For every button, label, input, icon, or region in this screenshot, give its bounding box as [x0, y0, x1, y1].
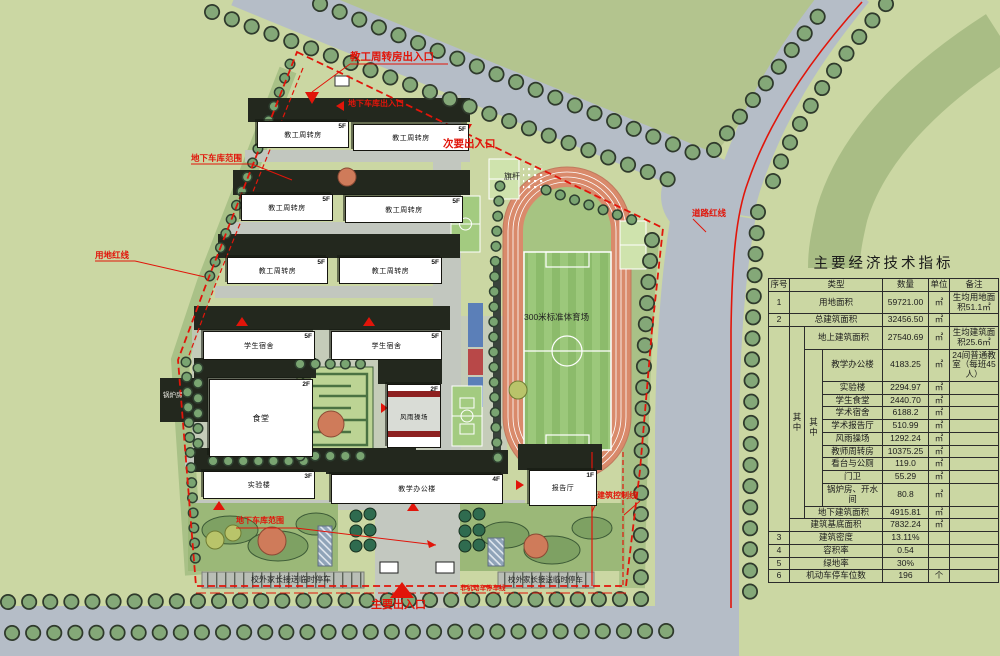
floor-label: 5F	[322, 196, 330, 203]
flagpole-label: 旗杆	[504, 173, 520, 181]
table-row: 3建筑密度13.11%	[769, 532, 999, 545]
floor-label: 5F	[431, 259, 439, 266]
secondary-entrance-label: 次要出入口	[443, 139, 496, 150]
floor-label: 1F	[586, 472, 594, 479]
parking-right-label: 校外家长接送临时停车	[508, 576, 583, 584]
building-dormitory-1: 学生宿舍5F	[203, 331, 315, 360]
building-label: 食堂	[253, 413, 270, 424]
table-row: 建筑基底面积7832.24㎡	[769, 519, 999, 532]
building-label: 学生宿舍	[244, 341, 274, 351]
building-teaching-office: 教学办公楼4F	[331, 474, 503, 504]
building-label: 教工周转房	[372, 266, 410, 276]
col-type: 类型	[790, 279, 883, 292]
floor-label: 5F	[431, 333, 439, 340]
building-canteen: 食堂2F	[209, 379, 313, 457]
building-label: 教工周转房	[268, 203, 306, 213]
building-staff-housing-6: 教工周转房5F	[339, 257, 442, 284]
indicators-table: 序号 类型 数量 单位 备注 1用地面积59721.00㎡生均用地面积51.1㎡…	[768, 278, 999, 583]
main-entrance-label: 主要出入口	[371, 600, 426, 611]
building-label: 学生宿舍	[372, 341, 402, 351]
building-label: 实验楼	[248, 480, 271, 490]
garage-extent-label-top: 地下车库范围	[191, 154, 242, 163]
table-header-row: 序号 类型 数量 单位 备注	[769, 279, 999, 292]
building-laboratory: 实验楼3F	[203, 471, 315, 499]
table-row: 其中地上建筑面积27540.69㎡生均建筑面积25.6㎡	[769, 327, 999, 350]
table-row: 5绿地率30%	[769, 557, 999, 570]
stadium-label: 300米标准体育场	[524, 313, 589, 322]
floor-label: 2F	[430, 386, 438, 393]
economic-indicators-panel: 主要经济技术指标 序号 类型 数量 单位 备注 1用地面积59721.00㎡生均…	[768, 252, 999, 583]
col-no: 序号	[769, 279, 790, 292]
col-unit: 单位	[929, 279, 950, 292]
gate-house	[380, 562, 398, 573]
table-row: 4容积率0.54	[769, 544, 999, 557]
floor-label: 2F	[302, 381, 310, 388]
floor-label: 4F	[492, 476, 500, 483]
building-label: 教学办公楼	[398, 484, 436, 494]
building-indoor-gym: 风雨操场2F	[387, 384, 441, 448]
building-label: 教工周转房	[385, 205, 423, 215]
boiler-room-label: 锅炉房	[163, 393, 183, 400]
nonmotor-parking-label: 非机动车停车线	[460, 586, 506, 593]
panel-title: 主要经济技术指标	[768, 252, 999, 273]
floor-label: 5F	[317, 259, 325, 266]
building-label: 风雨操场	[400, 411, 428, 421]
table-row: 6机动车停车位数196个	[769, 570, 999, 583]
garage-ramp	[488, 538, 504, 566]
staff-entrance-label: 教工周转房出入口	[350, 52, 434, 63]
building-staff-housing-1: 教工周转房5F	[257, 121, 349, 148]
floor-label: 5F	[338, 123, 346, 130]
garage-entrance-label: 地下车库出入口	[348, 100, 404, 108]
table-row: 2总建筑面积32456.50㎡	[769, 314, 999, 327]
building-lecture-hall: 报告厅1F	[529, 470, 597, 506]
building-control-label: 建筑控制线	[597, 492, 637, 500]
site-redline-label: 用地红线	[95, 251, 129, 260]
parking-left-label: 校外家长接送临时停车	[251, 576, 331, 584]
site-plan-canvas: .tdark{stroke:#2f3a2c;stroke-width:16;st…	[0, 0, 1000, 656]
building-dormitory-2: 学生宿舍5F	[331, 331, 442, 360]
football-field	[524, 252, 611, 450]
building-label: 教工周转房	[259, 266, 297, 276]
building-staff-housing-4: 教工周转房5F	[345, 196, 463, 223]
building-staff-housing-5: 教工周转房5F	[227, 257, 328, 284]
building-staff-housing-3: 教工周转房5F	[241, 194, 333, 221]
floor-label: 5F	[452, 198, 460, 205]
road-redline-label: 道路红线	[692, 209, 726, 218]
col-qty: 数量	[883, 279, 929, 292]
east-road	[697, 212, 714, 656]
building-label: 教工周转房	[392, 133, 430, 143]
gate-house	[436, 562, 454, 573]
col-note: 备注	[950, 279, 999, 292]
floor-label: 3F	[304, 473, 312, 480]
floor-label: 5F	[304, 333, 312, 340]
table-row: 1用地面积59721.00㎡生均用地面积51.1㎡	[769, 291, 999, 314]
building-label: 教工周转房	[284, 130, 322, 140]
building-label: 报告厅	[552, 483, 575, 493]
garage-extent-label-bottom: 地下车库范围	[236, 517, 284, 525]
entrance-plaza	[375, 500, 460, 608]
floor-label: 5F	[458, 126, 466, 133]
